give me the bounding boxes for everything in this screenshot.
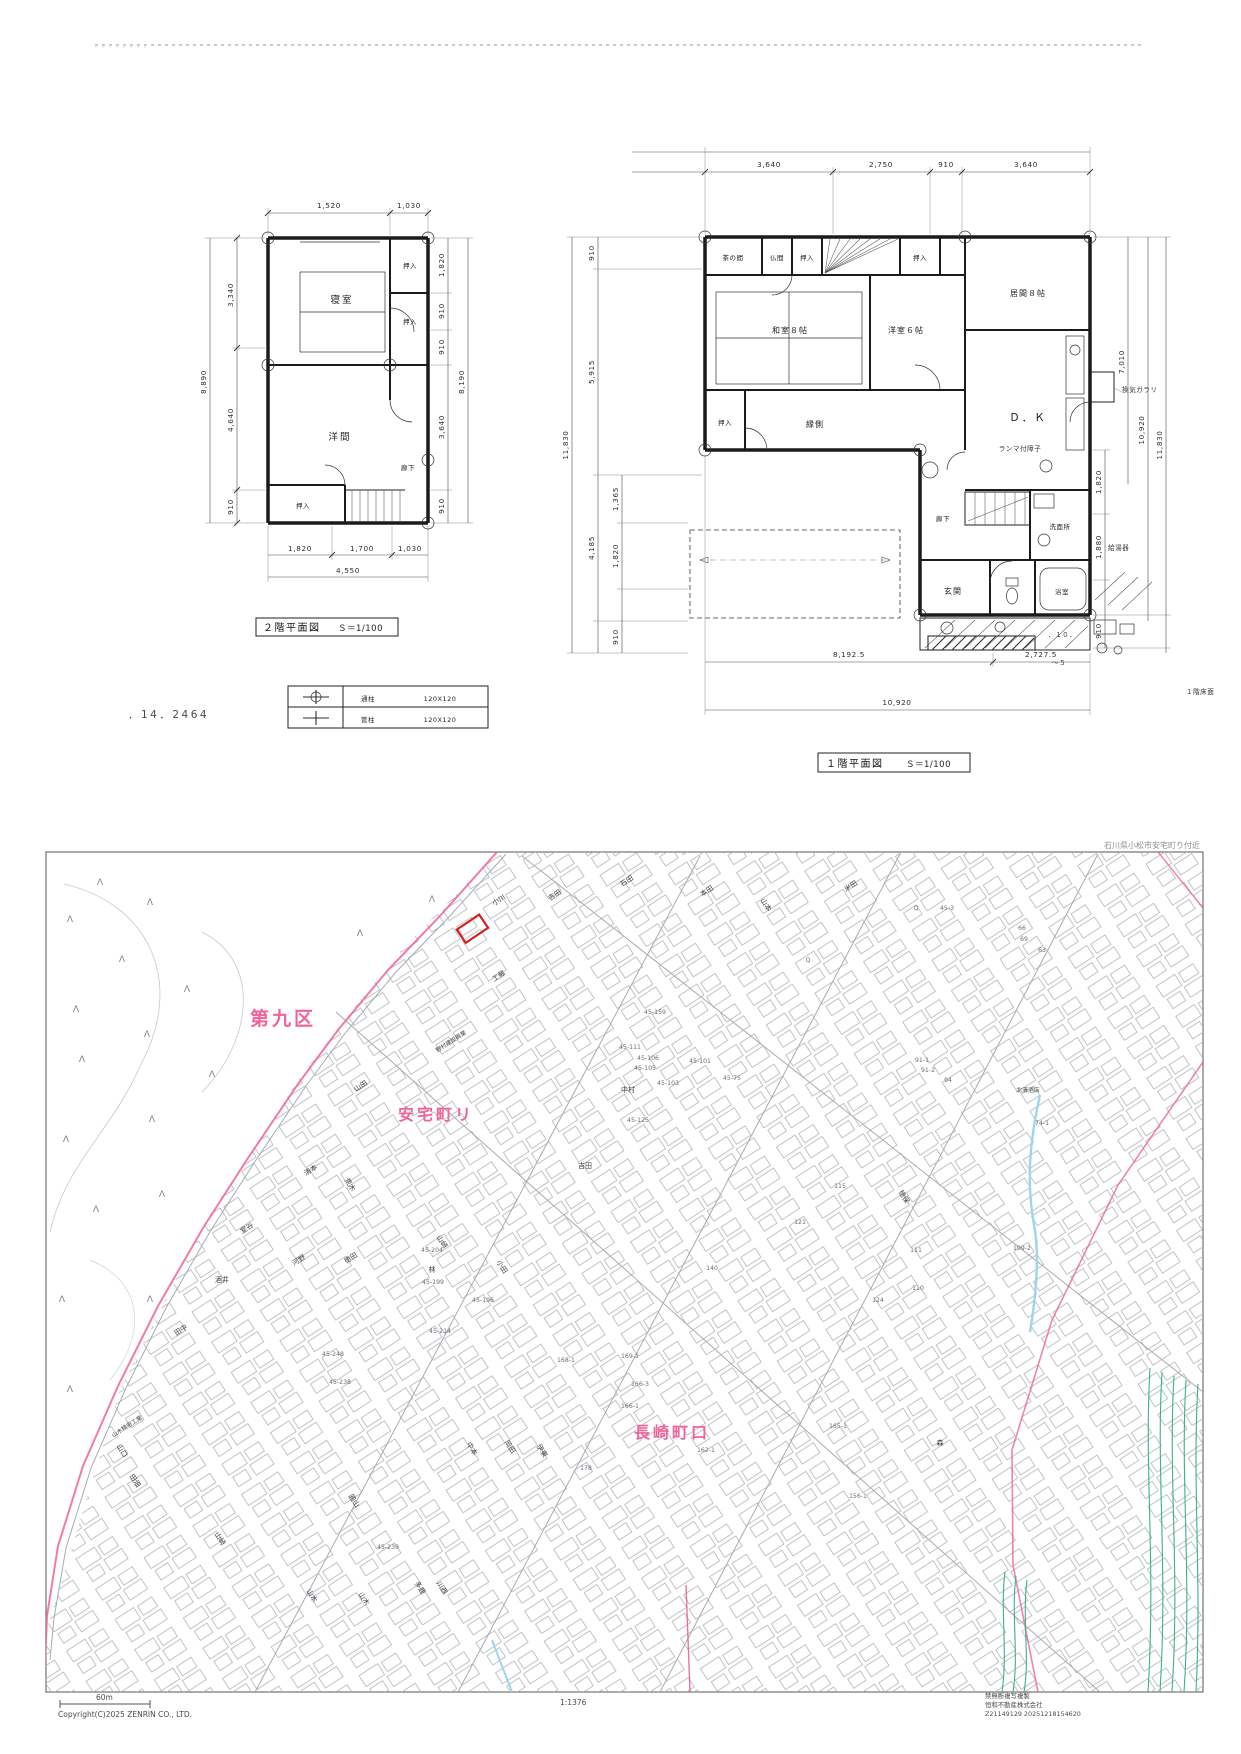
lot-number: 63: [1038, 947, 1046, 954]
dim-label: 910: [226, 499, 235, 515]
lot-number: 165-1: [829, 1423, 847, 1430]
dim-label: 2,727.5: [1025, 650, 1057, 659]
stairs-2f: [345, 490, 405, 521]
lot-number: 124: [872, 1297, 884, 1304]
lot-number: 162-1: [697, 1447, 715, 1454]
scan-artifact-text: ～５: [1052, 659, 1066, 667]
lot-number: 45-101: [689, 1058, 711, 1065]
dim-label: 1,880: [1094, 535, 1103, 559]
lot-number: 115: [834, 1183, 846, 1190]
tree-icon: Λ: [67, 915, 74, 925]
dim-label: 910: [437, 303, 446, 319]
map-notice-line3: Z21149129 20251218154620: [985, 1710, 1081, 1718]
lot-number: 45-239: [377, 1544, 399, 1551]
tree-icon: Λ: [119, 955, 126, 965]
tree-icon: Λ: [67, 1385, 74, 1395]
plan-scale-2f-text: Ｓ＝1/100: [338, 624, 383, 634]
tree-icon: Λ: [147, 1295, 154, 1305]
dim-label: 1,365: [611, 487, 620, 511]
dim-label: 1,520: [317, 201, 341, 210]
scan-artifact-text: １階床面: [1186, 687, 1214, 696]
tree-icon: Λ: [357, 929, 364, 939]
pillar-size: 120X120: [424, 695, 457, 703]
room-label-rouka: 廊下: [936, 514, 950, 523]
dim-label: 10,920: [882, 698, 911, 707]
tree-icon: Λ: [159, 1190, 166, 1200]
map-name-label: 中村: [621, 1085, 635, 1094]
dim-label: 11,830: [1155, 430, 1164, 459]
dim-label: 4,550: [336, 566, 360, 575]
map-notice-line1: 禁無断複写複製: [985, 1691, 1030, 1700]
lot-number: 166-1: [621, 1403, 639, 1410]
room-label-hallway: 廊下: [401, 463, 415, 472]
dim-label: 11,830: [561, 430, 570, 459]
lot-number: 45-106: [637, 1055, 659, 1062]
lot-number: 94: [944, 1077, 952, 1084]
standard-pillar-symbol: [303, 711, 329, 725]
lot-number: 45-248: [322, 1351, 344, 1358]
room-label-ima: 居間８帖: [1010, 288, 1046, 298]
plan-scale-1f-text: Ｓ＝1/100: [906, 760, 951, 770]
tree-icon: Λ: [429, 895, 436, 905]
lot-number: 45-103: [657, 1080, 679, 1087]
lot-number: 109-2: [1013, 1245, 1031, 1252]
tree-icon: Λ: [79, 1055, 86, 1065]
dim-label: 1,820: [611, 544, 620, 568]
dim-label: 1,030: [397, 201, 421, 210]
map-name-label: 林: [429, 1265, 436, 1274]
dim-label: 8,190: [457, 370, 466, 394]
tree-icon: Λ: [59, 1295, 66, 1305]
tree-icon: Λ: [209, 1070, 216, 1080]
through-pillar-symbol: [303, 690, 329, 704]
lot-number: 110: [912, 1285, 924, 1292]
lot-number: 45-105: [634, 1065, 656, 1072]
dim-label: 1,820: [437, 253, 446, 277]
dim-label: 1,700: [350, 544, 374, 553]
lot-number: 91-2: [921, 1067, 935, 1074]
room-label-closet-c: 押入: [296, 501, 310, 510]
map-scale-ratio: 1:1376: [560, 1698, 587, 1707]
lot-number: 69: [1020, 936, 1028, 943]
room-label-living: 洋間: [328, 431, 351, 443]
scale-bar-label: 60m: [96, 1693, 113, 1702]
room-label-genkan: 玄関: [944, 586, 962, 596]
pillar-name: 通柱: [361, 694, 375, 703]
room-label-butsuma: 仏間: [770, 254, 784, 262]
lot-number: 45-3: [940, 905, 954, 912]
water-heater-unit: [1094, 572, 1152, 654]
lot-number: 45-214: [429, 1328, 451, 1335]
lot-number: 168-1: [557, 1357, 575, 1364]
kitchen-counter: [922, 336, 1084, 478]
dim-label: 10,920: [1137, 415, 1146, 444]
lot-number: 91-1: [915, 1057, 929, 1064]
toilet-fixture: [1006, 578, 1018, 604]
room-label-closet-a: 押入: [403, 261, 417, 270]
lot-number: 45-204: [421, 1247, 443, 1254]
vent-annotation: 換気ガラリ: [1122, 385, 1157, 394]
plan-title-2f: ２階平面図 Ｓ＝1/100: [256, 618, 398, 636]
dimensions-1f: 3,640 2,750 910 3,640 910 5,915 4,185 1,…: [561, 147, 1171, 715]
dim-label: 3,340: [226, 283, 235, 307]
map-name-label: 森: [937, 1438, 944, 1447]
dim-label: 1,820: [288, 544, 312, 553]
room-label-washitsu: 和室８帖: [772, 325, 808, 335]
lot-number: 45-238: [329, 1379, 351, 1386]
map-name-label: 吉田: [578, 1162, 592, 1170]
dim-label: 1,820: [1094, 470, 1103, 494]
room-label-bedroom: 寝室: [330, 294, 353, 306]
dim-label: 910: [587, 245, 596, 261]
dim-label: 910: [938, 160, 954, 169]
dim-label: 910: [437, 339, 446, 355]
lot-number: 66: [1018, 925, 1026, 932]
tree-icon: Λ: [73, 1005, 80, 1015]
tree-icon: Λ: [93, 1205, 100, 1215]
map-notice-line2: 恒和不動産株式会社: [985, 1700, 1043, 1709]
area-label-nagasakimachi: 長崎町口: [634, 1423, 710, 1442]
map-caption: 石川県小松市安宅町り付近: [1104, 840, 1200, 850]
lot-number: 45-75: [723, 1075, 741, 1082]
hatch-block: [825, 239, 898, 273]
scan-artifact-text: ．１０．: [1048, 631, 1076, 639]
lot-number: 111: [910, 1247, 922, 1254]
room-label-closet-b: 押入: [913, 253, 927, 262]
lot-number: 45-111: [619, 1044, 641, 1051]
lot-number: 178: [580, 1465, 592, 1472]
dim-label: 3,640: [437, 415, 446, 439]
handwritten-note: ．14．2464: [128, 709, 209, 721]
dimensions-2f: 1,520 1,030 3,340 4,640 910 8,890 1,820 …: [199, 201, 473, 582]
pillar-name: 管柱: [361, 715, 375, 724]
dim-label: 7,010: [1117, 350, 1126, 374]
floor-plan-1f: 茶の間 仏間 押入 押入 居間８帖 和室８帖 洋室６帖 縁側 押入 Ｄ．Ｋ ラン…: [561, 147, 1214, 772]
room-label-closet-a: 押入: [800, 253, 814, 262]
tree-icon: Λ: [97, 878, 104, 888]
tree-icon: Λ: [149, 1115, 156, 1125]
room-label-closet-b: 押入: [403, 317, 417, 326]
plan-title-2f-text: ２階平面図: [263, 622, 321, 634]
area-label-atakamachi: 安宅町リ: [398, 1105, 474, 1124]
document-canvas: 寝室 押入 押入 洋間 押入 廊下 1,520 1,030 3,340 4,64…: [0, 0, 1241, 1754]
dim-label: 910: [611, 629, 620, 645]
lot-number: 74-1: [1035, 1120, 1049, 1127]
heater-annotation: 給湯器: [1108, 543, 1129, 552]
tree-icon: Λ: [144, 1030, 151, 1040]
dim-label: 4,640: [226, 408, 235, 432]
room-label-senmenjo: 洗面所: [1050, 522, 1071, 531]
ranma-annotation: ランマ付障子: [999, 444, 1042, 453]
lot-number: 45-125: [627, 1117, 649, 1124]
room-label-dk: Ｄ．Ｋ: [1009, 412, 1047, 424]
lot-number: 45-196: [472, 1297, 494, 1304]
pillar-legend-table: ．14．2464 通柱 120X120 管柱 120X120: [128, 686, 488, 728]
lot-number: 140: [706, 1265, 718, 1272]
map-copyright: Copyright(C)2025 ZENRIN CO., LTD.: [58, 1710, 192, 1719]
plan-title-1f: １階平面図 Ｓ＝1/100: [818, 753, 970, 772]
tree-icon: Λ: [184, 985, 191, 995]
room-label-yoshitsu: 洋室６帖: [888, 325, 924, 335]
scale-bar: 60m: [60, 1693, 150, 1708]
map-footer: 60m Copyright(C)2025 ZENRIN CO., LTD. 1:…: [58, 1691, 1081, 1719]
scan-artifacts: [95, 45, 1145, 47]
area-label-daikyuku: 第九区: [250, 1007, 316, 1030]
pillar-size: 120X120: [424, 716, 457, 724]
lot-number: 45-199: [422, 1279, 444, 1286]
dim-label: 5,915: [587, 360, 596, 384]
tree-icon: Λ: [63, 1135, 70, 1145]
dim-label: 910: [437, 498, 446, 514]
room-label-engawa: 縁側: [806, 419, 824, 429]
lot-number: 169-1: [621, 1353, 639, 1360]
dim-label: 3,640: [1014, 160, 1038, 169]
room-label-chanoma: 茶の間: [723, 253, 744, 262]
floor-plan-2f: 寝室 押入 押入 洋間 押入 廊下 1,520 1,030 3,340 4,64…: [128, 201, 488, 728]
garden-dashed-outline: [690, 530, 900, 618]
map-name-label: 酒井: [215, 1275, 229, 1284]
lot-number: 166-3: [631, 1381, 649, 1388]
plan-title-1f-text: １階平面図: [826, 758, 884, 770]
lot-number: 156-1: [849, 1493, 867, 1500]
dim-label: 2,750: [869, 160, 893, 169]
dim-label: 910: [1094, 623, 1103, 639]
dim-label: 3,640: [757, 160, 781, 169]
zenrin-map: 石川県小松市安宅町り付近 Λ Λ Λ: [44, 840, 1203, 1692]
tree-icon: Λ: [147, 898, 154, 908]
room-label-yokushitsu: 浴室: [1055, 587, 1069, 596]
lot-number: 121: [794, 1219, 806, 1226]
lot-number: Q: [914, 905, 919, 912]
stairs-1f: [965, 492, 1030, 525]
dim-label: 8,890: [199, 370, 208, 394]
dim-label: 4,185: [587, 536, 596, 560]
lot-number: Q: [806, 957, 811, 964]
room-label-closet-c: 押入: [718, 418, 732, 427]
lot-number: 45-159: [644, 1009, 666, 1016]
dim-label: 1,030: [398, 544, 422, 553]
dim-label: 8,192.5: [833, 650, 865, 659]
map-name-label: 北清酒店: [1016, 1086, 1039, 1094]
washbasin-fixture: [1034, 494, 1054, 546]
scanned-document-page: 寝室 押入 押入 洋間 押入 廊下 1,520 1,030 3,340 4,64…: [0, 0, 1241, 1754]
